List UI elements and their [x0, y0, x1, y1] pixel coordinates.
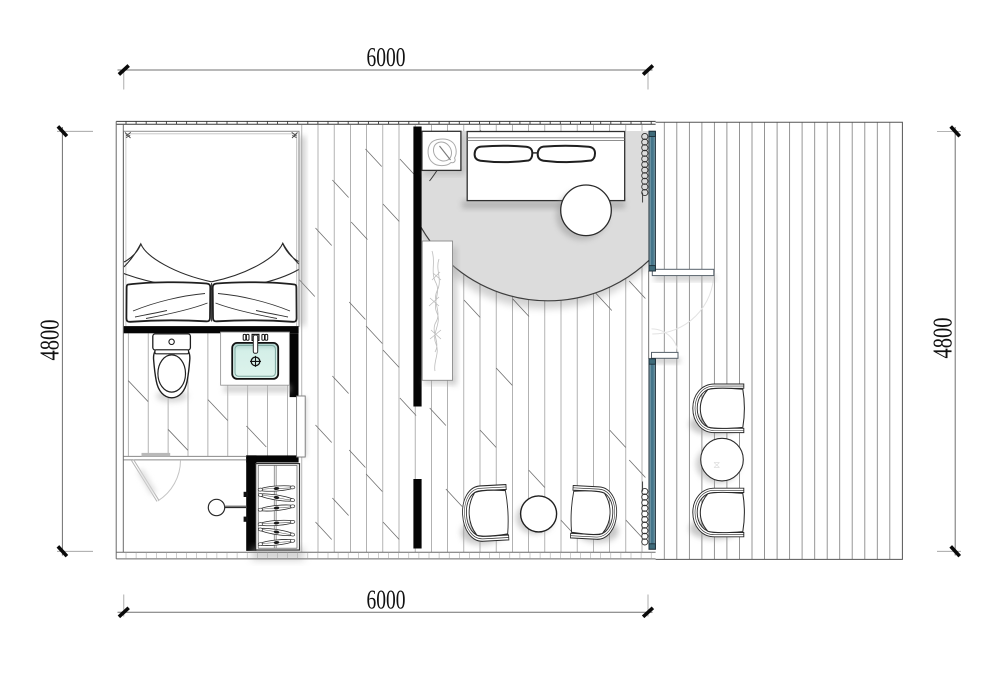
svg-text:4800: 4800 — [34, 320, 65, 361]
svg-text:4800: 4800 — [927, 318, 958, 359]
svg-text:6000: 6000 — [367, 583, 406, 614]
svg-text:6000: 6000 — [367, 41, 406, 72]
